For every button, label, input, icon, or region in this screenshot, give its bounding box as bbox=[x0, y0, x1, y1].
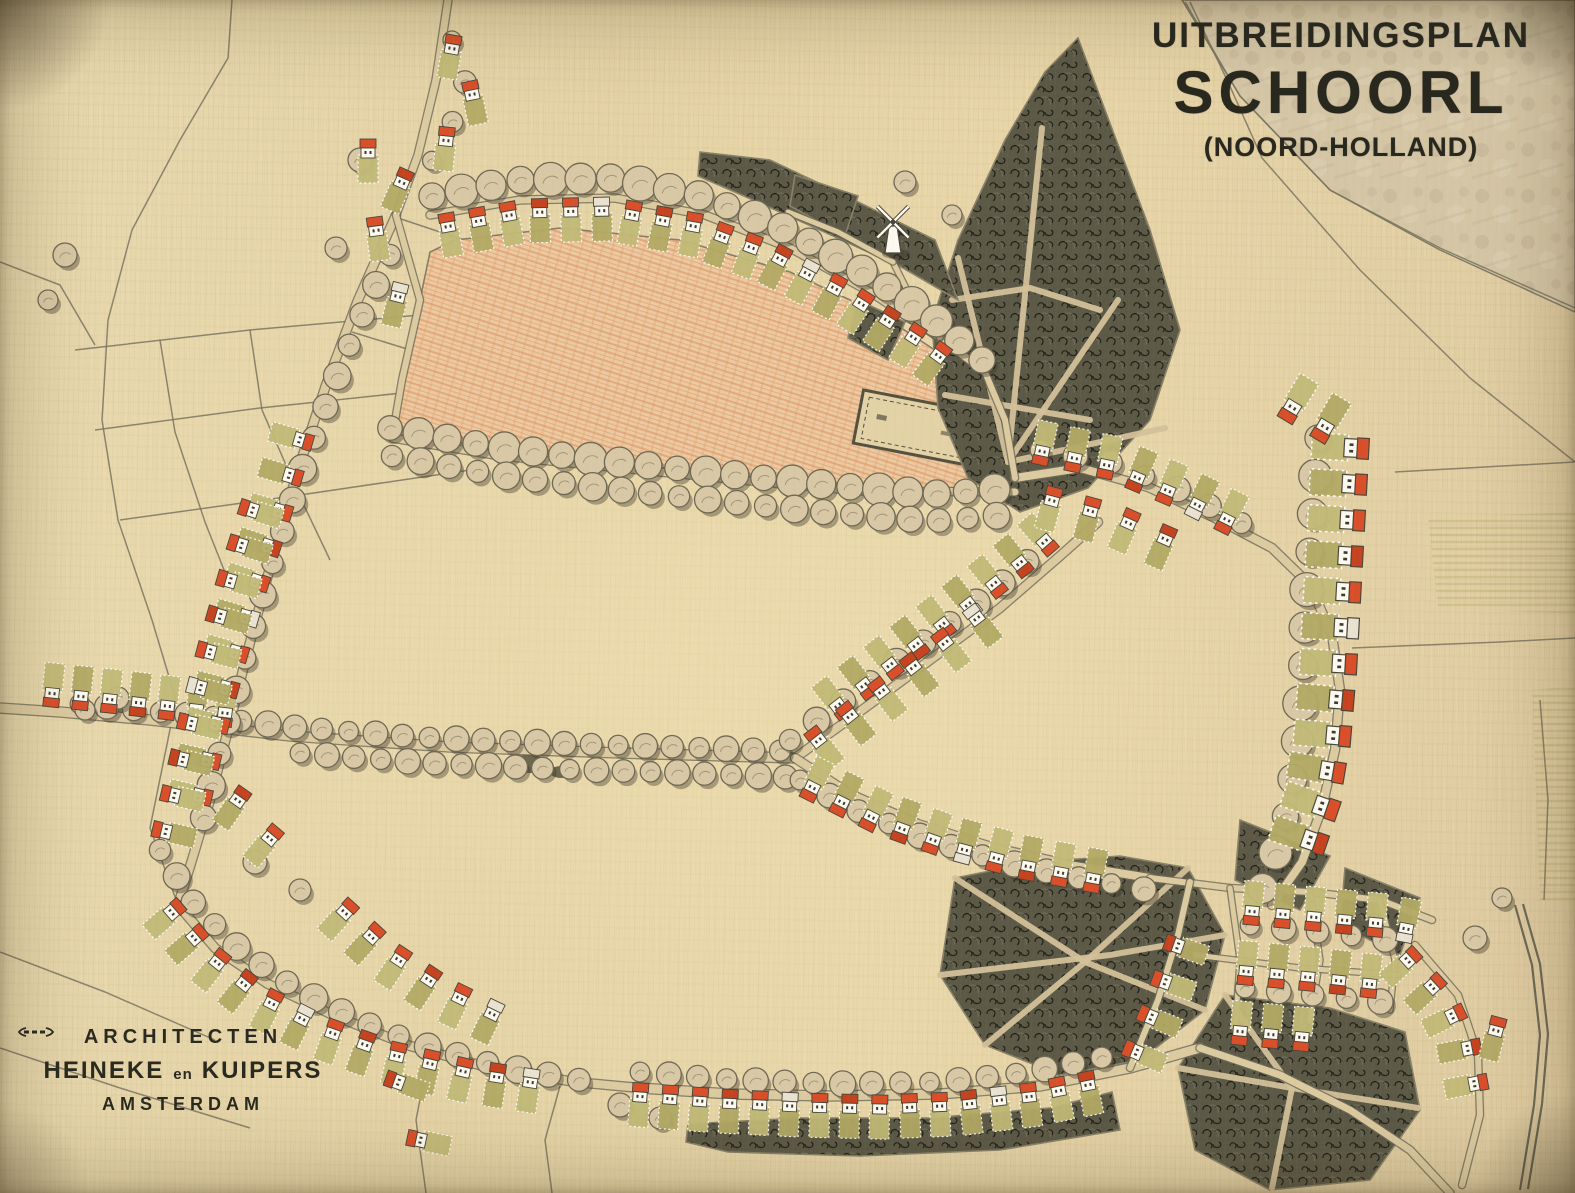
tree-icon bbox=[867, 503, 895, 531]
tree-icon bbox=[407, 448, 434, 475]
tree-icon bbox=[803, 1072, 824, 1093]
firm-name-b: KUIPERS bbox=[202, 1057, 323, 1085]
map-canvas bbox=[0, 0, 1575, 1193]
tree-icon bbox=[560, 759, 580, 779]
window bbox=[1332, 731, 1336, 734]
roof bbox=[782, 1092, 798, 1102]
facade bbox=[131, 697, 146, 709]
window bbox=[906, 1106, 908, 1109]
facade bbox=[489, 1071, 504, 1083]
garden-plot bbox=[592, 213, 613, 241]
tree-icon bbox=[745, 763, 771, 789]
window bbox=[1334, 701, 1338, 704]
tree-icon bbox=[488, 432, 520, 464]
tree-icon bbox=[1131, 877, 1156, 902]
facade bbox=[440, 221, 456, 233]
facade bbox=[369, 225, 384, 237]
tree-icon bbox=[534, 162, 568, 196]
tree-icon bbox=[1463, 926, 1487, 950]
tree-icon bbox=[552, 472, 575, 495]
tree-icon bbox=[811, 499, 836, 524]
facade bbox=[1276, 908, 1291, 919]
window bbox=[1335, 695, 1339, 698]
window bbox=[603, 209, 605, 212]
tree-icon bbox=[942, 205, 962, 225]
facade bbox=[962, 1098, 977, 1110]
window bbox=[641, 1095, 643, 1098]
tree-icon bbox=[289, 879, 311, 901]
tree-icon bbox=[507, 166, 534, 193]
window bbox=[876, 1107, 878, 1110]
facade bbox=[1332, 654, 1346, 673]
window bbox=[572, 210, 574, 213]
tree-icon bbox=[983, 502, 1010, 529]
facade bbox=[1239, 965, 1254, 976]
city-label: AMSTERDAM bbox=[18, 1094, 348, 1115]
roof bbox=[562, 198, 578, 207]
window bbox=[164, 704, 166, 707]
tree-icon bbox=[687, 1065, 710, 1088]
window bbox=[442, 139, 444, 142]
tree-icon bbox=[403, 418, 434, 449]
tree-icon bbox=[807, 470, 836, 499]
window bbox=[1001, 1098, 1003, 1101]
firm-joiner: en bbox=[173, 1066, 193, 1085]
window bbox=[636, 1095, 638, 1098]
facade bbox=[1398, 922, 1414, 934]
tree-icon bbox=[612, 760, 635, 783]
window bbox=[1315, 916, 1317, 919]
tree-icon bbox=[472, 728, 495, 751]
window bbox=[1279, 913, 1281, 916]
facade bbox=[1306, 911, 1321, 922]
window bbox=[541, 211, 543, 214]
window bbox=[1349, 450, 1353, 453]
facade bbox=[1021, 860, 1037, 872]
window bbox=[1339, 630, 1343, 633]
tree-icon bbox=[378, 416, 403, 441]
tree-icon bbox=[419, 727, 439, 747]
tree-icon bbox=[633, 734, 658, 759]
window bbox=[1272, 1033, 1274, 1036]
tree-icon bbox=[38, 290, 58, 310]
window bbox=[53, 692, 55, 695]
tree-icon bbox=[897, 506, 923, 532]
tree-icon bbox=[668, 486, 689, 507]
tree-icon bbox=[690, 456, 721, 487]
window bbox=[82, 695, 84, 698]
window bbox=[936, 1105, 938, 1108]
facade bbox=[533, 207, 547, 217]
tree-icon bbox=[338, 334, 360, 356]
window bbox=[111, 698, 113, 701]
tree-icon bbox=[979, 474, 1010, 505]
tree-icon bbox=[608, 477, 634, 503]
window bbox=[77, 695, 79, 698]
facade bbox=[1326, 726, 1340, 745]
tree-icon bbox=[596, 164, 624, 192]
house bbox=[591, 197, 612, 241]
province-subtitle: (NOORD-HOLLAND) bbox=[1141, 132, 1541, 162]
window bbox=[106, 698, 108, 701]
roof bbox=[1347, 618, 1360, 639]
facade bbox=[1264, 1028, 1279, 1039]
tree-icon bbox=[445, 174, 478, 207]
window bbox=[1340, 979, 1342, 982]
facade bbox=[1294, 1031, 1309, 1042]
roof bbox=[593, 197, 609, 206]
tree-icon bbox=[325, 237, 347, 259]
window bbox=[1242, 970, 1244, 973]
tree-icon bbox=[584, 758, 609, 783]
tree-icon bbox=[522, 467, 547, 492]
roof bbox=[1355, 474, 1368, 495]
tree-icon bbox=[684, 181, 713, 210]
tree-icon bbox=[463, 431, 489, 457]
window bbox=[1346, 515, 1350, 518]
tree-icon bbox=[1006, 1063, 1026, 1083]
window bbox=[447, 139, 449, 142]
tree-icon bbox=[957, 507, 978, 528]
facade bbox=[1080, 1079, 1096, 1092]
tree-icon bbox=[751, 465, 777, 491]
tree-icon bbox=[976, 1065, 999, 1088]
window bbox=[1348, 479, 1352, 482]
window bbox=[1248, 910, 1250, 913]
tree-icon bbox=[773, 1070, 796, 1093]
tree-icon bbox=[567, 1068, 590, 1091]
window bbox=[372, 229, 374, 232]
tree-icon bbox=[311, 718, 333, 740]
house bbox=[929, 1092, 951, 1137]
tree-icon bbox=[920, 1072, 940, 1092]
tree-icon bbox=[608, 1093, 632, 1117]
facade bbox=[501, 210, 517, 222]
tree-icon bbox=[776, 465, 808, 497]
firm-name-a: HEINEKE bbox=[44, 1057, 165, 1085]
facade bbox=[73, 690, 88, 701]
garden-plot bbox=[718, 1105, 739, 1134]
window bbox=[1030, 1095, 1032, 1098]
tree-icon bbox=[381, 445, 402, 466]
window bbox=[1267, 1033, 1269, 1036]
tree-icon bbox=[640, 762, 660, 782]
facade bbox=[1245, 905, 1260, 916]
tree-icon bbox=[444, 726, 469, 751]
tree-icon bbox=[283, 715, 307, 739]
window bbox=[1366, 982, 1368, 985]
tree-icon bbox=[343, 746, 366, 769]
window bbox=[726, 1101, 728, 1104]
window bbox=[851, 1106, 853, 1109]
window bbox=[226, 712, 228, 715]
tree-icon bbox=[339, 721, 359, 741]
window bbox=[1347, 486, 1351, 489]
tree-icon bbox=[923, 480, 950, 507]
window bbox=[1371, 983, 1373, 986]
tree-icon bbox=[969, 347, 995, 373]
facade bbox=[595, 206, 609, 216]
tree-icon bbox=[694, 486, 721, 513]
tree-icon bbox=[578, 473, 606, 501]
garden-plot bbox=[778, 1108, 799, 1137]
house bbox=[839, 1094, 860, 1138]
title-block: UITBREIDINGSPLAN SCHOORL (NOORD-HOLLAND) bbox=[1141, 16, 1541, 163]
roof bbox=[812, 1093, 828, 1102]
meadow-strip bbox=[1428, 512, 1575, 614]
tree-icon bbox=[927, 509, 951, 533]
tree-icon bbox=[433, 424, 461, 452]
tree-icon bbox=[724, 490, 748, 514]
tree-icon bbox=[290, 743, 310, 763]
window bbox=[1344, 551, 1348, 554]
facade bbox=[1362, 978, 1377, 990]
facade bbox=[471, 215, 487, 227]
roof bbox=[360, 139, 376, 148]
roof bbox=[901, 1094, 917, 1104]
tree-icon bbox=[946, 1068, 971, 1093]
window bbox=[1241, 1030, 1243, 1033]
facade bbox=[1338, 546, 1352, 565]
house bbox=[358, 139, 378, 183]
window bbox=[1337, 665, 1341, 668]
window bbox=[1284, 913, 1286, 916]
window bbox=[821, 1106, 823, 1109]
tree-icon bbox=[635, 452, 662, 479]
tree-icon bbox=[894, 171, 916, 193]
facade bbox=[1368, 917, 1383, 928]
firm-name-line: HEINEKE en KUIPERS bbox=[18, 1057, 348, 1085]
roof bbox=[872, 1095, 888, 1104]
window bbox=[1304, 975, 1306, 978]
tree-icon bbox=[741, 738, 764, 761]
tree-icon bbox=[837, 474, 863, 500]
tree-icon bbox=[149, 839, 170, 860]
window bbox=[701, 1100, 703, 1103]
town-name-title: SCHOORL bbox=[1141, 59, 1541, 126]
tree-icon bbox=[953, 479, 978, 504]
garden-plot bbox=[839, 1110, 860, 1138]
window bbox=[1298, 1036, 1300, 1039]
window bbox=[169, 705, 171, 708]
facade bbox=[1329, 690, 1343, 709]
tree-icon bbox=[665, 456, 690, 481]
facade bbox=[1331, 974, 1346, 986]
roof bbox=[1351, 546, 1364, 567]
architects-label: ARCHITECTEN bbox=[18, 1026, 348, 1049]
facade bbox=[722, 1098, 736, 1109]
tree-icon bbox=[350, 303, 374, 327]
tree-icon bbox=[363, 272, 390, 299]
facade bbox=[752, 1100, 766, 1111]
tree-icon bbox=[437, 454, 461, 478]
tree-icon bbox=[1492, 888, 1512, 908]
roof bbox=[722, 1089, 738, 1099]
garden-plot bbox=[930, 1108, 951, 1137]
window bbox=[816, 1105, 818, 1108]
window bbox=[135, 701, 137, 704]
window bbox=[1331, 737, 1335, 740]
tree-icon bbox=[738, 200, 771, 233]
window bbox=[881, 1107, 883, 1110]
window bbox=[140, 702, 142, 705]
window bbox=[598, 209, 600, 212]
tree-icon bbox=[532, 757, 554, 779]
window bbox=[1278, 973, 1280, 976]
window bbox=[1377, 922, 1379, 925]
tree-icon bbox=[363, 721, 388, 746]
facade bbox=[1053, 866, 1069, 878]
facade bbox=[624, 209, 640, 221]
tree-icon bbox=[846, 255, 877, 286]
facade bbox=[1022, 1091, 1037, 1103]
garden-plot bbox=[869, 1111, 890, 1139]
tree-icon bbox=[451, 754, 472, 775]
facade bbox=[843, 1103, 857, 1113]
roof bbox=[1345, 654, 1358, 675]
window bbox=[696, 1099, 698, 1102]
tree-icon bbox=[657, 1062, 682, 1087]
tree-icon bbox=[1062, 1052, 1085, 1075]
facade bbox=[522, 1077, 537, 1089]
window bbox=[536, 211, 538, 214]
tree-icon bbox=[714, 193, 740, 219]
tree-icon bbox=[638, 481, 662, 505]
tree-icon bbox=[693, 762, 716, 785]
tree-icon bbox=[841, 503, 864, 526]
tree-icon bbox=[549, 442, 575, 468]
tree-icon bbox=[661, 735, 684, 758]
tree-icon bbox=[893, 477, 923, 507]
tree-icon bbox=[653, 173, 685, 205]
window bbox=[666, 1097, 668, 1100]
tree-icon bbox=[395, 749, 420, 774]
tree-icon bbox=[779, 729, 800, 750]
tree-icon bbox=[580, 733, 602, 755]
tree-icon bbox=[500, 731, 521, 752]
facade bbox=[692, 1096, 707, 1107]
window bbox=[1341, 594, 1345, 597]
tree-icon bbox=[768, 213, 798, 243]
window bbox=[731, 1102, 733, 1105]
facade bbox=[1085, 872, 1101, 884]
house bbox=[529, 198, 550, 242]
facade bbox=[1344, 438, 1358, 457]
tree-icon bbox=[391, 724, 414, 747]
window bbox=[377, 229, 379, 232]
attribution-block: ARCHITECTEN HEINEKE en KUIPERS AMSTERDAM bbox=[18, 1026, 348, 1115]
facade bbox=[633, 1091, 648, 1102]
tree-icon bbox=[467, 460, 489, 482]
window bbox=[971, 1102, 973, 1105]
window bbox=[1346, 919, 1348, 922]
garden-plot bbox=[358, 155, 378, 183]
tree-icon bbox=[324, 362, 352, 390]
window bbox=[1343, 558, 1347, 561]
tree-icon bbox=[475, 753, 501, 779]
tree-icon bbox=[552, 731, 576, 755]
tree-icon bbox=[524, 729, 550, 755]
tree-icon bbox=[604, 447, 634, 477]
roof bbox=[842, 1094, 858, 1103]
window bbox=[1342, 587, 1346, 590]
facade bbox=[1336, 582, 1350, 601]
window bbox=[1273, 973, 1275, 976]
tree-icon bbox=[781, 495, 809, 523]
facade bbox=[1334, 618, 1348, 637]
tree-icon bbox=[574, 442, 607, 475]
roof bbox=[931, 1092, 947, 1102]
facade bbox=[902, 1103, 916, 1114]
facade bbox=[932, 1101, 946, 1112]
facade bbox=[1300, 971, 1315, 982]
tree-icon bbox=[1101, 874, 1121, 894]
window bbox=[1338, 659, 1342, 662]
tree-icon bbox=[315, 743, 340, 768]
garden-plot bbox=[748, 1106, 769, 1135]
facade bbox=[1340, 510, 1354, 529]
facade bbox=[45, 687, 60, 698]
tree-icon bbox=[689, 737, 709, 757]
window bbox=[941, 1104, 943, 1107]
facade bbox=[1270, 968, 1285, 979]
facade bbox=[1233, 1025, 1248, 1036]
window bbox=[791, 1105, 793, 1108]
tree-icon bbox=[371, 749, 391, 769]
garden-plot bbox=[530, 214, 551, 242]
window bbox=[1253, 910, 1255, 913]
tree-icon bbox=[623, 166, 658, 201]
garden-plot bbox=[561, 214, 582, 242]
house-row bbox=[1229, 1000, 1315, 1052]
tree-icon bbox=[630, 1062, 650, 1082]
facade bbox=[782, 1101, 796, 1112]
window bbox=[1025, 1095, 1027, 1098]
window bbox=[1340, 623, 1344, 626]
window bbox=[1335, 979, 1337, 982]
tree-icon bbox=[518, 437, 547, 466]
garden-plot bbox=[900, 1109, 921, 1138]
window bbox=[786, 1104, 788, 1107]
tree-icon bbox=[255, 711, 281, 737]
tree-icon bbox=[830, 1071, 856, 1097]
tree-icon bbox=[721, 764, 742, 785]
tree-icon bbox=[565, 163, 596, 194]
window bbox=[846, 1106, 848, 1109]
window bbox=[966, 1102, 968, 1105]
facade bbox=[361, 148, 375, 158]
window bbox=[996, 1099, 998, 1102]
tree-icon bbox=[665, 760, 690, 785]
window bbox=[1236, 1030, 1238, 1033]
tree-icon bbox=[313, 394, 338, 419]
window bbox=[911, 1106, 913, 1109]
tree-icon bbox=[53, 243, 77, 267]
house bbox=[899, 1093, 921, 1138]
house bbox=[809, 1093, 830, 1137]
window bbox=[761, 1103, 763, 1106]
roof bbox=[1349, 582, 1362, 603]
window bbox=[567, 210, 569, 213]
window bbox=[1310, 915, 1312, 918]
tree-icon bbox=[721, 461, 749, 489]
window bbox=[1309, 976, 1311, 979]
tree-icon bbox=[754, 495, 776, 517]
facade bbox=[1051, 1085, 1067, 1098]
tree-icon bbox=[163, 863, 190, 890]
roof bbox=[632, 1082, 649, 1092]
facade bbox=[444, 43, 460, 55]
